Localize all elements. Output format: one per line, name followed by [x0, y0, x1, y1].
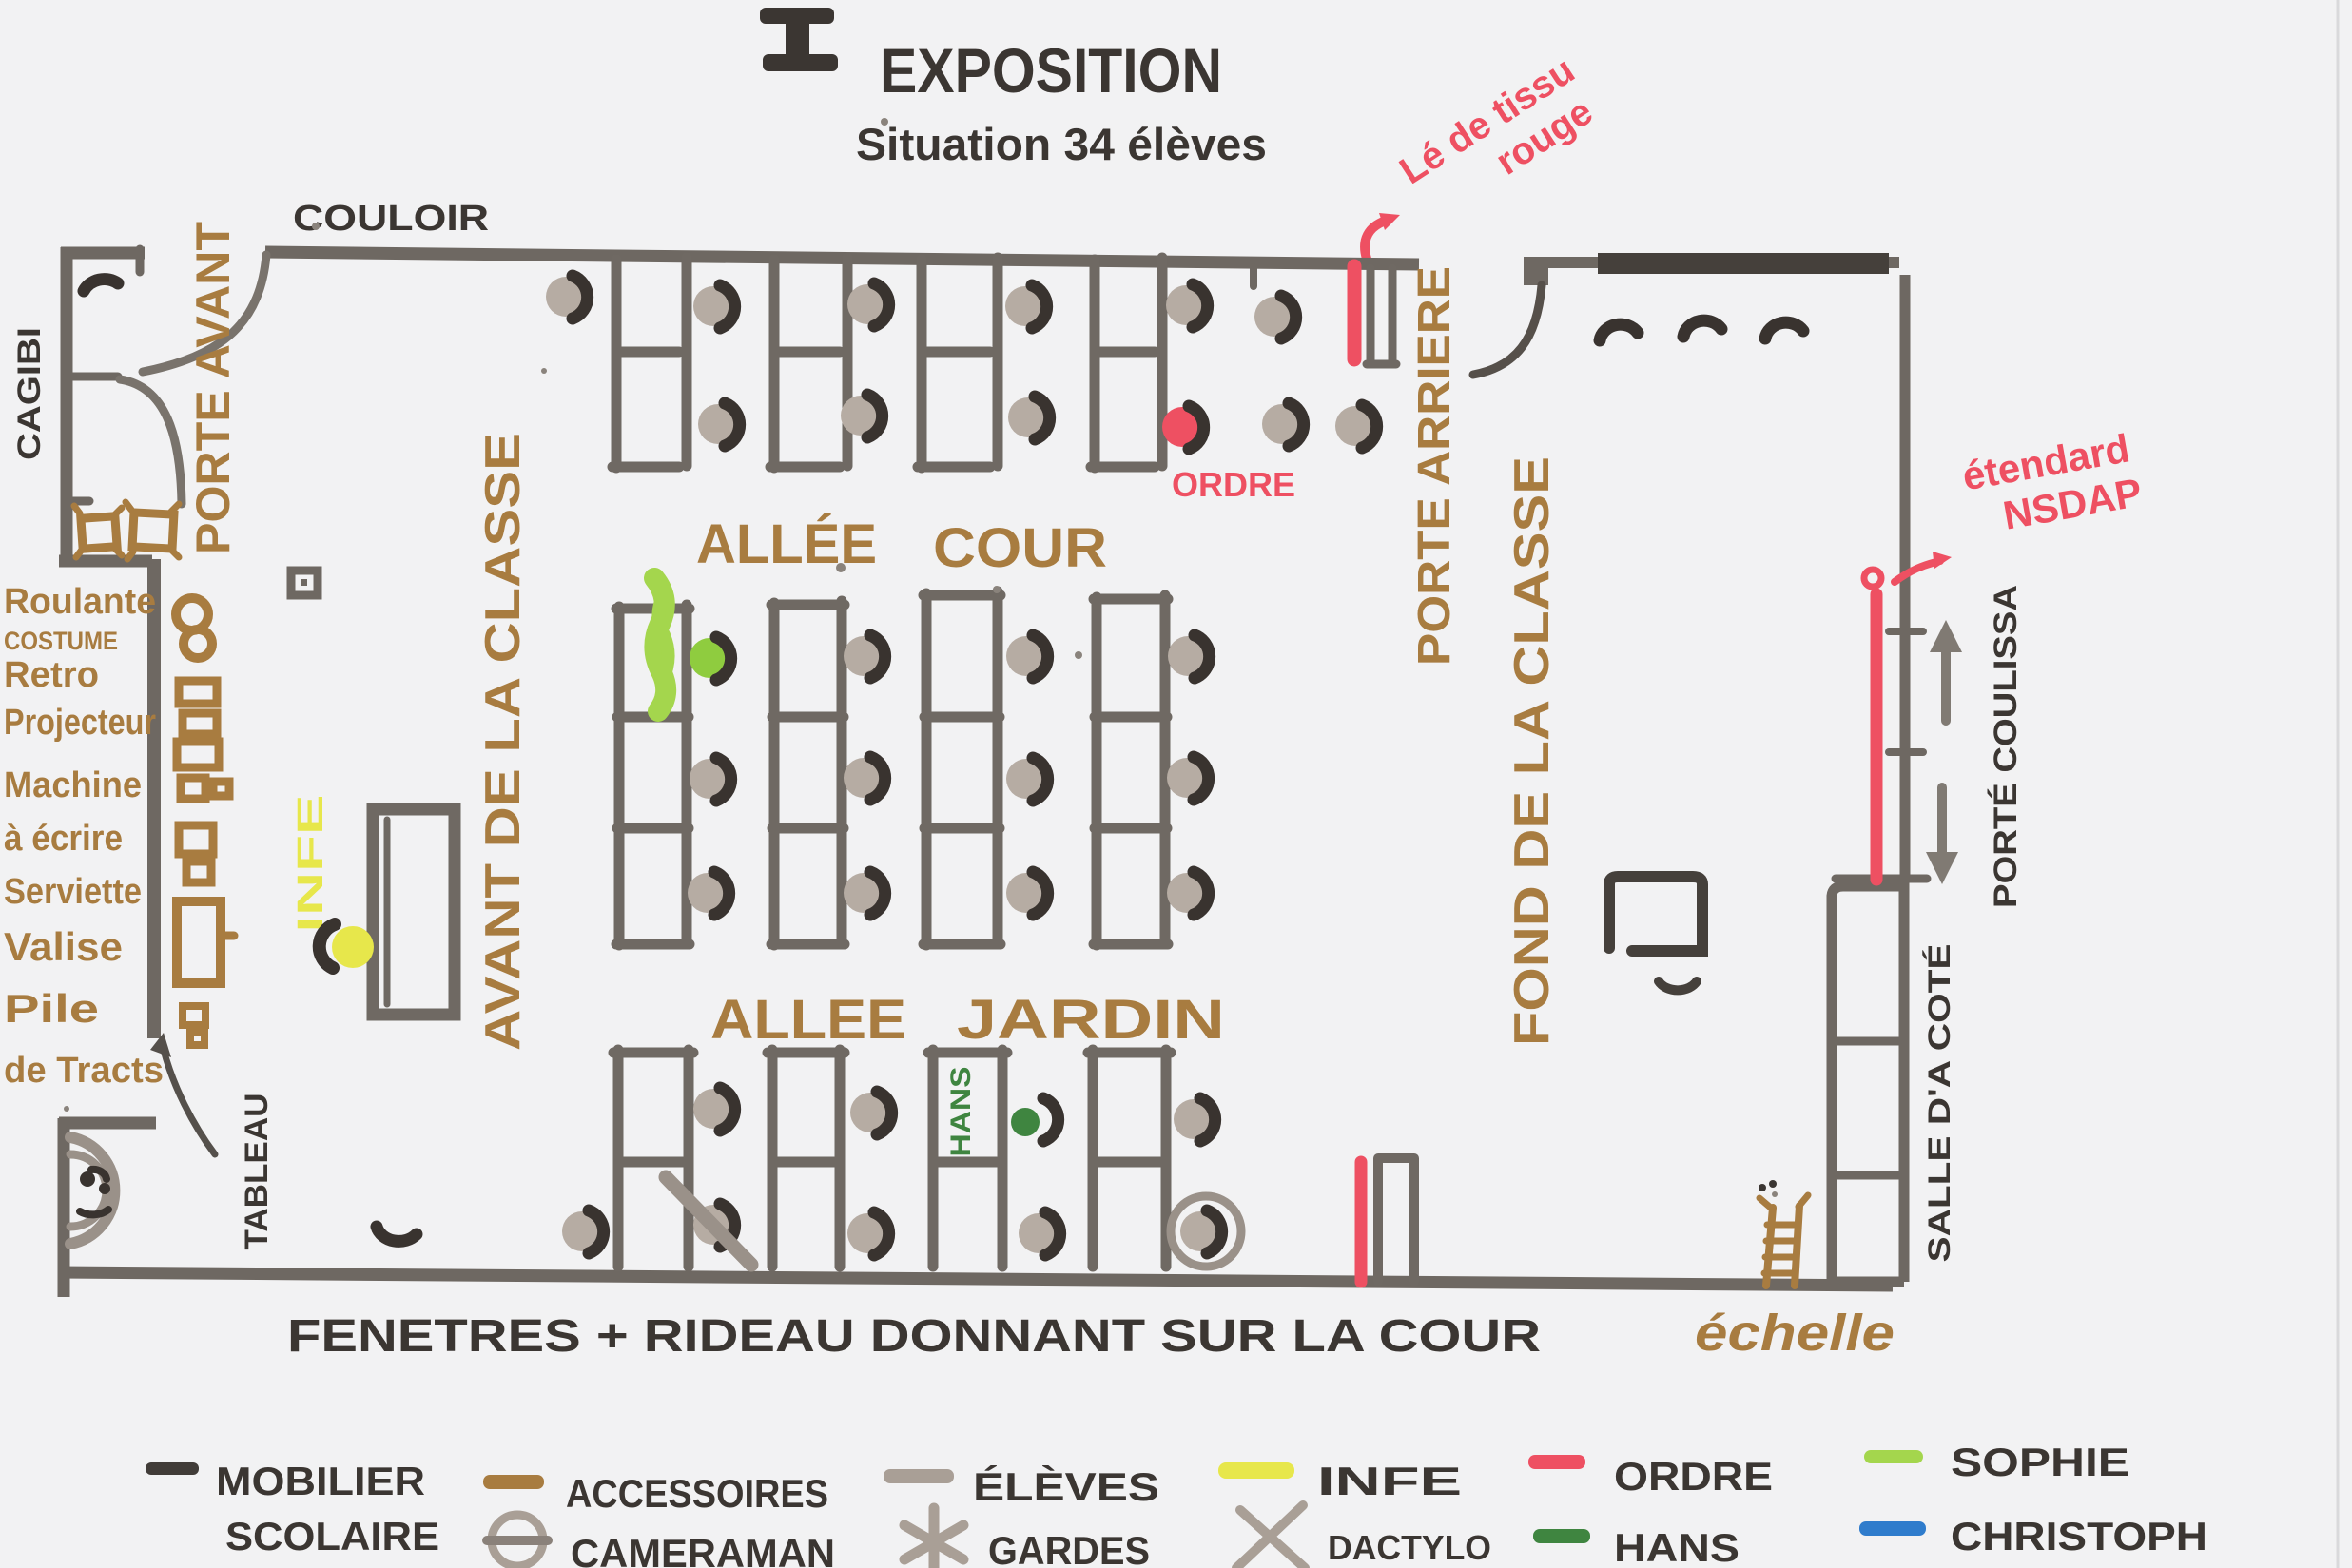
svg-text:INFE: INFE: [1317, 1459, 1462, 1503]
svg-text:FOND DE LA CLASSE: FOND DE LA CLASSE: [1505, 456, 1560, 1046]
svg-text:SALLE D'A COTÉ: SALLE D'A COTÉ: [1922, 944, 1956, 1263]
svg-text:SOPHIE: SOPHIE: [1951, 1440, 2129, 1484]
svg-text:de Tracts: de Tracts: [4, 1051, 164, 1091]
svg-text:CAMERAMAN: CAMERAMAN: [571, 1531, 835, 1568]
svg-text:HANS: HANS: [945, 1067, 977, 1157]
svg-text:CAGIBI: CAGIBI: [11, 327, 48, 460]
svg-text:GARDES: GARDES: [988, 1528, 1150, 1568]
svg-text:Roulante: Roulante: [4, 582, 156, 622]
svg-text:Valise: Valise: [4, 924, 123, 969]
svg-text:DACTYLO: DACTYLO: [1328, 1528, 1491, 1567]
svg-text:à écrire: à écrire: [4, 819, 123, 859]
svg-text:AVANT DE LA CLASSE: AVANT DE LA CLASSE: [476, 433, 531, 1051]
svg-text:ALLÉE: ALLÉE: [696, 513, 877, 575]
svg-text:Projecteur: Projecteur: [4, 703, 156, 743]
svg-text:FENETRES + RIDEAU DONNANT SUR: FENETRES + RIDEAU DONNANT SUR LA COUR: [287, 1311, 1541, 1362]
svg-text:COUR: COUR: [933, 517, 1107, 579]
svg-text:MOBILIER: MOBILIER: [216, 1459, 425, 1503]
svg-text:échelle: échelle: [1695, 1305, 1895, 1362]
svg-text:CHRISTOPH: CHRISTOPH: [1951, 1514, 2207, 1558]
svg-text:ORDRE: ORDRE: [1614, 1454, 1773, 1499]
svg-text:SCOLAIRE: SCOLAIRE: [225, 1514, 439, 1558]
svg-text:PORTE ARRIERE: PORTE ARRIERE: [1409, 266, 1460, 666]
svg-text:Serviette: Serviette: [4, 872, 142, 912]
svg-text:Situation 34 élèves: Situation 34 élèves: [856, 119, 1267, 169]
svg-text:ALLEE: ALLEE: [710, 989, 906, 1051]
svg-text:HANS: HANS: [1614, 1525, 1740, 1568]
svg-text:TABLEAU: TABLEAU: [239, 1094, 275, 1250]
svg-text:ORDRE: ORDRE: [1172, 465, 1295, 504]
svg-text:PORTÉ COULISSA: PORTÉ COULISSA: [1988, 585, 2024, 908]
svg-text:JARDIN: JARDIN: [957, 989, 1225, 1051]
svg-text:Retro: Retro: [4, 655, 99, 695]
svg-text:COULOIR: COULOIR: [293, 199, 489, 239]
svg-text:Machine: Machine: [4, 765, 142, 805]
svg-text:INFE: INFE: [291, 795, 331, 933]
svg-text:COSTUME: COSTUME: [4, 627, 118, 655]
svg-text:ÉLÈVES: ÉLÈVES: [973, 1464, 1159, 1509]
svg-text:Pile: Pile: [4, 986, 99, 1031]
svg-text:EXPOSITION: EXPOSITION: [880, 35, 1222, 106]
svg-text:ACCESSOIRES: ACCESSOIRES: [566, 1471, 828, 1516]
svg-text:PORTE AVANT: PORTE AVANT: [186, 222, 240, 554]
